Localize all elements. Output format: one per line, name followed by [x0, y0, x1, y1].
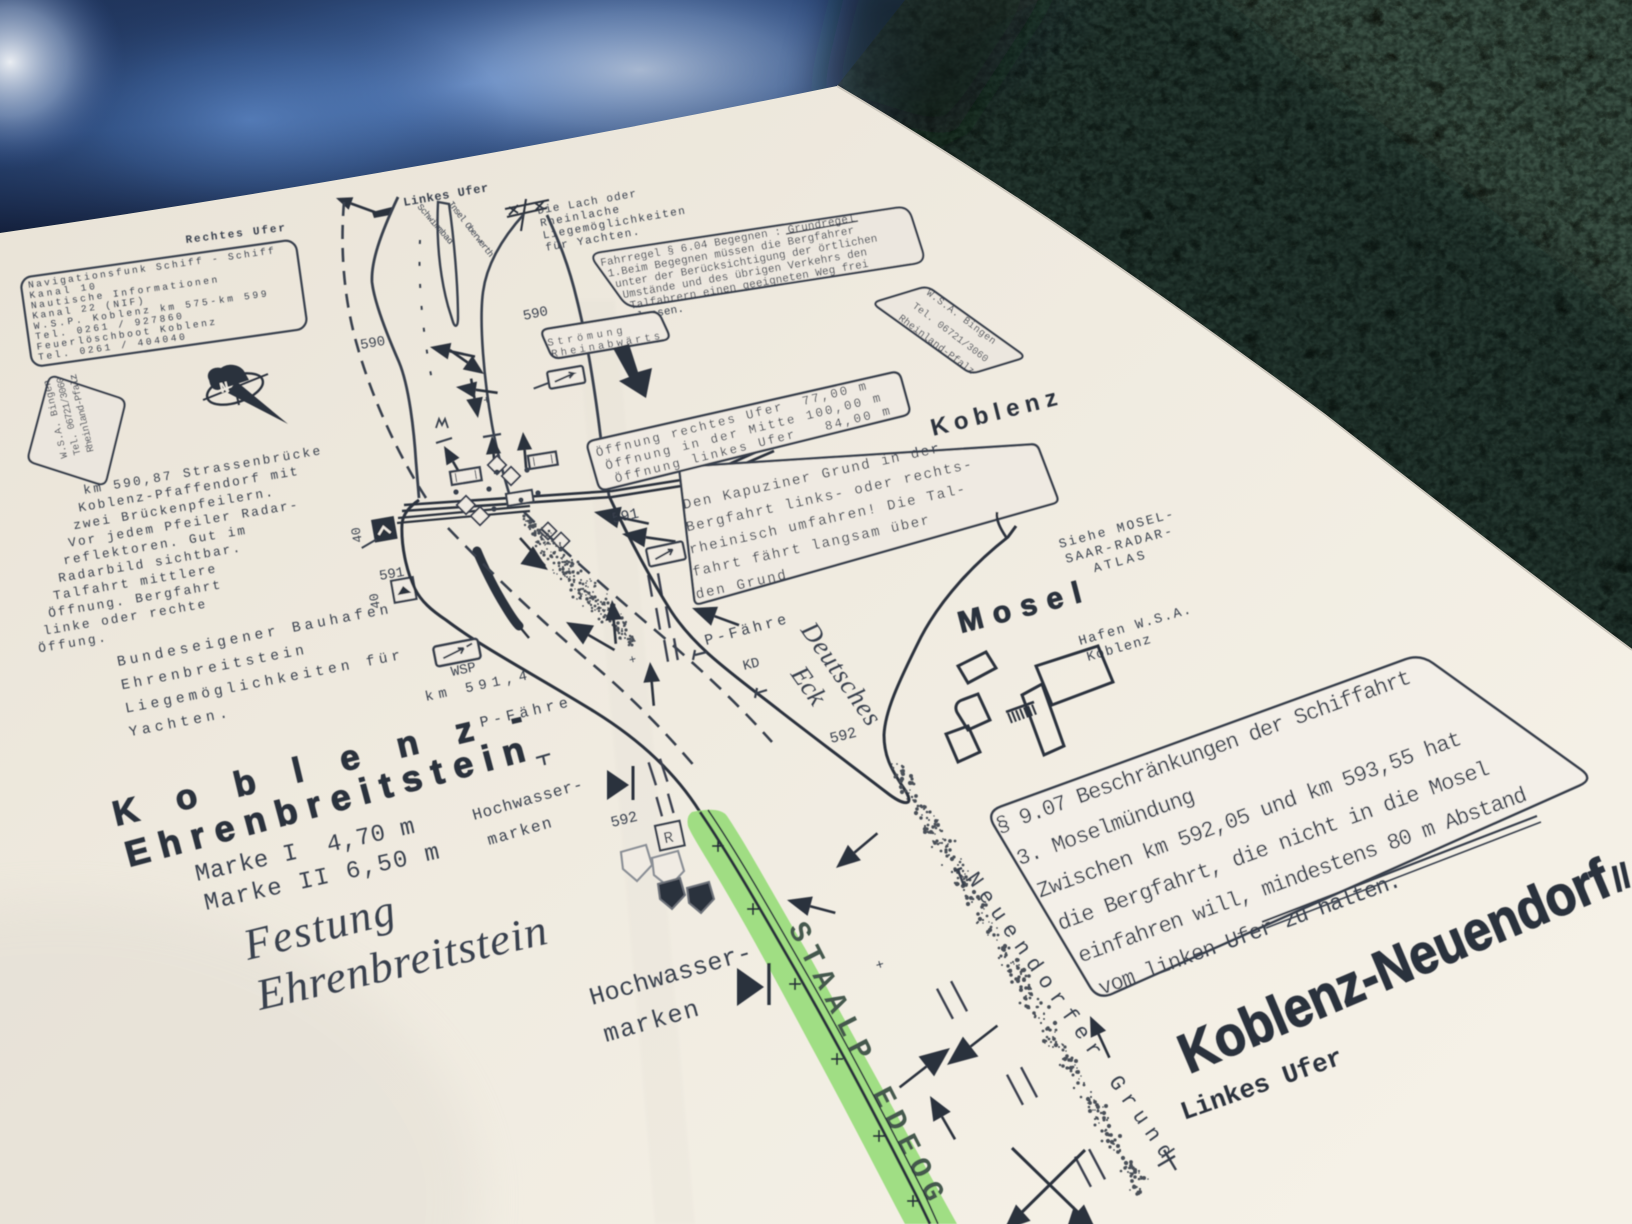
svg-text:40: 40 [348, 526, 365, 544]
svg-text:40: 40 [366, 592, 383, 610]
